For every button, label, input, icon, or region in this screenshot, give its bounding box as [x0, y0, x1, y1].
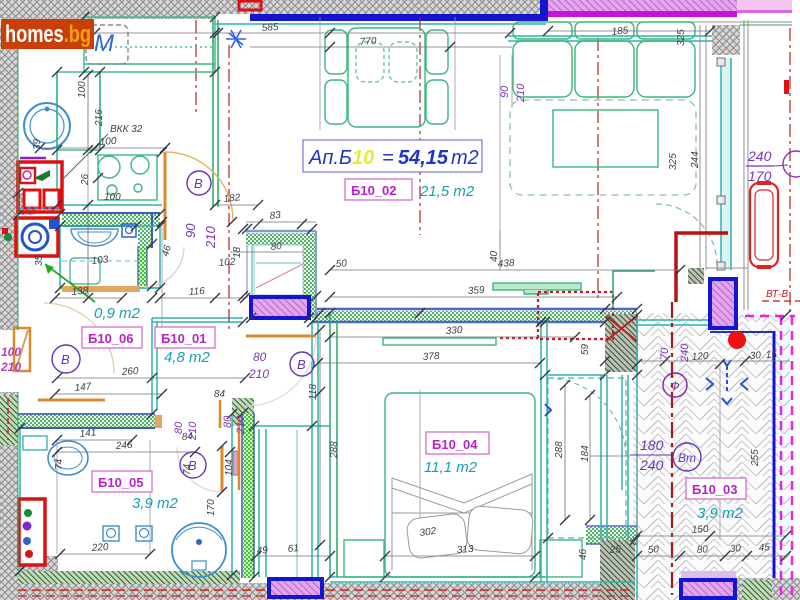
svg-text:210: 210: [515, 83, 527, 103]
svg-text:3,9 m2: 3,9 m2: [132, 495, 179, 512]
svg-text:185: 185: [611, 25, 629, 38]
svg-text:255: 255: [750, 449, 761, 467]
svg-text:50: 50: [647, 544, 659, 556]
svg-text:180: 180: [640, 437, 664, 453]
svg-text:147: 147: [74, 381, 92, 394]
svg-text:Б10_06: Б10_06: [88, 331, 134, 346]
svg-text:=: =: [382, 147, 394, 169]
svg-text:170: 170: [748, 168, 772, 184]
svg-text:30: 30: [729, 543, 741, 555]
svg-text:35: 35: [34, 254, 45, 266]
svg-text:70: 70: [659, 347, 671, 360]
svg-text:59: 59: [580, 343, 591, 355]
svg-text:80: 80: [270, 241, 283, 253]
svg-text:В: В: [297, 357, 306, 372]
svg-text:homes.bg: homes.bg: [5, 21, 91, 48]
svg-text:116: 116: [188, 286, 205, 298]
svg-text:Б10_03: Б10_03: [692, 482, 738, 497]
svg-text:18: 18: [232, 246, 243, 258]
svg-text:Б10_04: Б10_04: [432, 437, 478, 452]
svg-text:М: М: [94, 30, 114, 57]
svg-text:330: 330: [445, 325, 463, 337]
svg-text:118: 118: [308, 384, 319, 400]
svg-text:141: 141: [79, 427, 97, 440]
svg-text:325: 325: [676, 29, 687, 46]
svg-text:80: 80: [173, 421, 185, 434]
svg-text:61: 61: [287, 543, 299, 555]
svg-text:Вт: Вт: [678, 451, 696, 465]
svg-text:ВТ-В: ВТ-В: [766, 289, 788, 300]
svg-text:170: 170: [206, 499, 217, 516]
svg-text:210: 210: [187, 421, 199, 441]
svg-text:325: 325: [668, 153, 679, 170]
svg-text:104: 104: [224, 459, 235, 476]
svg-text:4,8 m2: 4,8 m2: [164, 349, 211, 366]
svg-text:182: 182: [223, 192, 241, 205]
svg-text:150: 150: [691, 524, 709, 536]
svg-text:246: 246: [114, 440, 133, 452]
svg-text:3,9 m2: 3,9 m2: [697, 505, 744, 522]
svg-text:46: 46: [578, 548, 589, 560]
svg-text:288: 288: [554, 441, 565, 459]
svg-text:210: 210: [0, 360, 21, 374]
svg-text:585: 585: [261, 22, 279, 34]
svg-text:100: 100: [77, 81, 88, 98]
svg-text:100: 100: [1, 345, 21, 359]
svg-text:184: 184: [580, 445, 591, 462]
svg-text:15: 15: [765, 349, 777, 361]
svg-text:100: 100: [104, 192, 121, 203]
svg-text:83: 83: [269, 210, 282, 222]
svg-text:В: В: [194, 176, 203, 191]
svg-text:80: 80: [253, 350, 267, 364]
svg-text:90: 90: [499, 85, 511, 98]
svg-text:288: 288: [329, 441, 340, 459]
svg-text:240: 240: [747, 148, 772, 164]
svg-text:103: 103: [91, 254, 109, 267]
svg-text:770: 770: [359, 36, 377, 48]
svg-text:m2: m2: [451, 147, 479, 169]
svg-text:26: 26: [80, 173, 91, 186]
svg-text:90: 90: [183, 223, 198, 238]
svg-text:25: 25: [608, 544, 621, 556]
svg-text:11,1 m2: 11,1 m2: [424, 459, 478, 476]
svg-text:210: 210: [235, 415, 247, 435]
svg-text:30: 30: [749, 350, 761, 362]
svg-text:240: 240: [679, 343, 691, 363]
svg-text:Ф: Ф: [670, 379, 680, 393]
svg-text:120: 120: [691, 351, 709, 363]
svg-text:138: 138: [71, 285, 89, 298]
svg-text:210: 210: [203, 226, 218, 249]
svg-text:80: 80: [696, 544, 708, 556]
svg-text:49: 49: [256, 545, 268, 557]
svg-text:378: 378: [422, 351, 440, 363]
svg-text:244: 244: [690, 151, 701, 169]
svg-text:84: 84: [214, 389, 226, 400]
svg-text:438: 438: [497, 258, 515, 270]
svg-text:50: 50: [335, 258, 347, 270]
svg-text:359: 359: [467, 285, 485, 297]
svg-text:260: 260: [120, 366, 139, 378]
svg-text:В: В: [61, 352, 70, 367]
svg-text:74: 74: [54, 458, 65, 470]
svg-text:Б10_01: Б10_01: [161, 331, 207, 346]
svg-text:Б10_02: Б10_02: [351, 183, 397, 198]
svg-text:216: 216: [94, 109, 105, 127]
svg-text:313: 313: [456, 544, 474, 556]
svg-text:74: 74: [182, 463, 193, 475]
svg-text:210: 210: [248, 367, 269, 381]
svg-text:240: 240: [639, 457, 664, 473]
svg-text:10: 10: [352, 147, 374, 169]
svg-text:100: 100: [99, 136, 117, 148]
svg-text:Ап.Б: Ап.Б: [308, 147, 352, 169]
svg-text:39: 39: [32, 138, 43, 150]
svg-text:80: 80: [222, 415, 234, 428]
svg-text:0,9 m2: 0,9 m2: [94, 305, 141, 322]
svg-text:21,5 m2: 21,5 m2: [419, 183, 475, 200]
svg-text:40: 40: [489, 250, 500, 262]
svg-text:54,15: 54,15: [398, 147, 449, 169]
svg-text:ВКК 32: ВКК 32: [110, 124, 143, 135]
svg-text:45: 45: [758, 542, 770, 554]
svg-text:220: 220: [90, 542, 109, 554]
svg-text:Б10_05: Б10_05: [98, 475, 144, 490]
